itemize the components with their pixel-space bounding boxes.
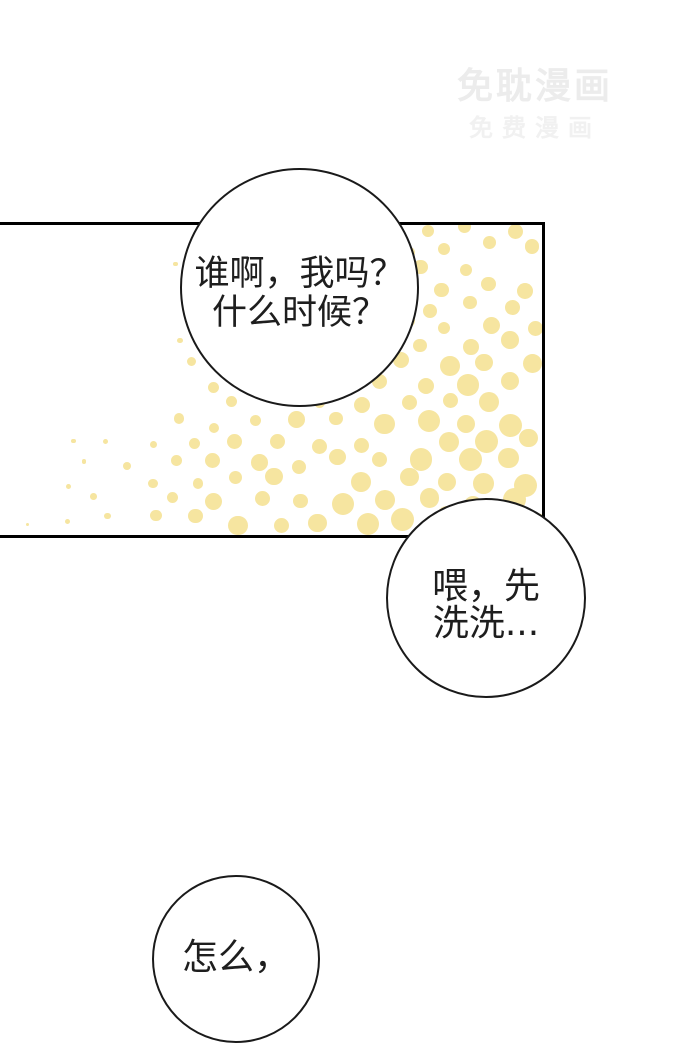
watermark-subtitle: 免费漫画 (440, 114, 630, 142)
halftone-dot (173, 262, 177, 266)
halftone-dot (463, 296, 477, 310)
halftone-dot (372, 452, 387, 467)
halftone-dot (483, 236, 496, 249)
halftone-dot (66, 484, 71, 489)
halftone-dot (71, 439, 76, 444)
halftone-dot (434, 283, 449, 298)
speech-bubble-1-text: 谁啊，我吗？ 什么时候？ (194, 255, 404, 333)
halftone-dot (228, 516, 248, 536)
halftone-dot (148, 479, 157, 488)
halftone-dot (438, 322, 451, 335)
halftone-dot (167, 492, 178, 503)
halftone-dot (523, 354, 542, 373)
halftone-dot (418, 378, 434, 394)
halftone-dot (501, 372, 519, 390)
halftone-dot (293, 494, 308, 509)
halftone-dot (193, 478, 204, 489)
halftone-dot (26, 523, 29, 526)
halftone-dot (177, 338, 183, 344)
halftone-dot (443, 393, 458, 408)
halftone-dot (174, 413, 185, 424)
halftone-dot (508, 224, 523, 239)
halftone-dot (413, 339, 427, 353)
halftone-dot (150, 510, 162, 522)
halftone-dot (187, 357, 196, 366)
halftone-dot (357, 513, 379, 535)
watermark: 免耽漫画 免费漫画 (440, 66, 630, 142)
halftone-dot (420, 488, 440, 508)
halftone-dot (459, 448, 482, 471)
halftone-dot (410, 448, 433, 471)
bubble-text-line: 谁啊，我吗？ (194, 255, 404, 294)
halftone-dot (457, 374, 479, 396)
halftone-dot (150, 441, 158, 449)
halftone-dot (439, 432, 460, 453)
halftone-dot (123, 462, 131, 470)
halftone-dot (329, 449, 345, 465)
halftone-dot (208, 382, 219, 393)
halftone-dot (205, 453, 220, 468)
halftone-dot (354, 397, 370, 413)
halftone-dot (375, 490, 395, 510)
halftone-dot (251, 454, 268, 471)
halftone-dot (501, 331, 519, 349)
halftone-dot (422, 225, 434, 237)
halftone-dot (104, 513, 111, 520)
halftone-dot (458, 222, 471, 233)
halftone-dot (517, 283, 533, 299)
bubble-text-line: 什么时候？ (194, 294, 404, 333)
halftone-dot (351, 472, 371, 492)
halftone-dot (475, 430, 498, 453)
halftone-dot (288, 411, 305, 428)
halftone-dot (205, 493, 222, 510)
halftone-dot (463, 339, 479, 355)
halftone-dot (481, 277, 496, 292)
halftone-dot (374, 414, 394, 434)
halftone-dot (103, 439, 108, 444)
halftone-dot (312, 439, 327, 454)
halftone-dot (391, 508, 414, 531)
halftone-dot (65, 519, 70, 524)
halftone-dot (90, 493, 97, 500)
halftone-dot (188, 509, 203, 524)
halftone-dot (440, 356, 460, 376)
halftone-dot (498, 448, 518, 468)
halftone-dot (292, 460, 306, 474)
halftone-dot (457, 415, 476, 434)
halftone-dot (418, 410, 440, 432)
halftone-dot (171, 455, 182, 466)
halftone-dot (274, 518, 289, 533)
halftone-dot (483, 317, 500, 334)
halftone-dot (438, 473, 457, 492)
halftone-dot (479, 392, 499, 412)
watermark-title: 免耽漫画 (440, 66, 630, 108)
halftone-dot (189, 438, 200, 449)
halftone-dot (229, 471, 242, 484)
halftone-dot (227, 434, 242, 449)
halftone-dot (82, 459, 87, 464)
halftone-dot (475, 354, 492, 371)
halftone-dot (519, 429, 538, 448)
speech-bubble-2: 喂，先 洗洗... (386, 498, 586, 698)
halftone-dot (423, 304, 437, 318)
speech-bubble-2-text: 喂，先 洗洗... (432, 568, 540, 642)
speech-bubble-3-text: 怎么， (182, 938, 290, 977)
halftone-dot (270, 434, 285, 449)
halftone-dot (250, 415, 262, 427)
halftone-dot (499, 414, 522, 437)
speech-bubble-1: 谁啊，我吗？ 什么时候？ (180, 168, 419, 407)
halftone-dot (226, 396, 237, 407)
halftone-dot (209, 423, 219, 433)
halftone-dot (438, 243, 450, 255)
halftone-dot (332, 493, 354, 515)
halftone-dot (505, 300, 520, 315)
halftone-dot (460, 264, 472, 276)
speech-bubble-3: 怎么， (152, 875, 320, 1043)
halftone-dot (402, 395, 417, 410)
bubble-text-line: 喂，先 (432, 568, 540, 605)
halftone-dot (400, 468, 419, 487)
halftone-dot (308, 514, 327, 533)
halftone-dot (525, 239, 540, 254)
halftone-dot (473, 473, 494, 494)
halftone-dot (265, 468, 282, 485)
bubble-text-line: 洗洗... (432, 605, 540, 642)
halftone-dot (255, 491, 270, 506)
halftone-dot (528, 321, 543, 336)
halftone-dot (354, 438, 370, 454)
bubble-text-line: 怎么， (182, 938, 290, 977)
halftone-dot (329, 412, 343, 426)
